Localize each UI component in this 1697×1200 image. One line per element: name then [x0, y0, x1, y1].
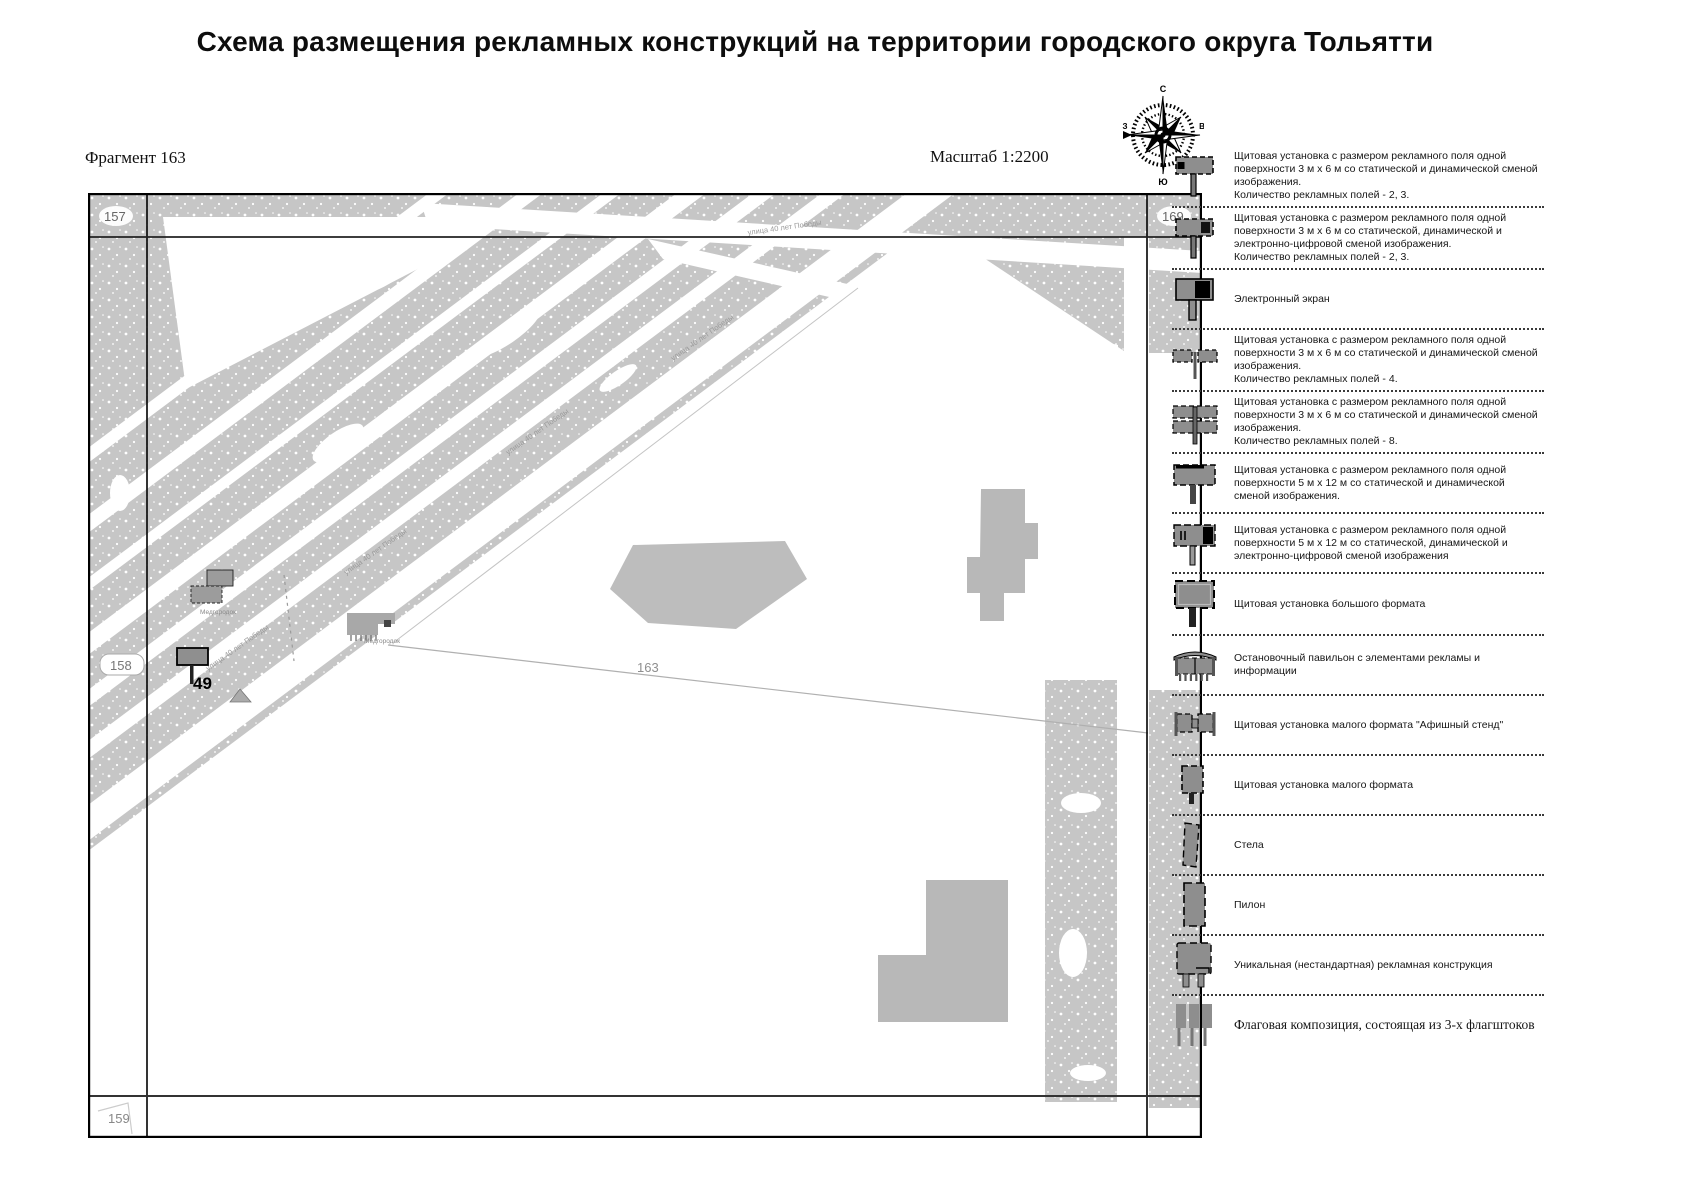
legend-item: Щитовая установка большого формата: [1172, 574, 1544, 636]
legend-item-text: Электронный экран: [1234, 293, 1542, 306]
electronic-screen-icon: [1172, 275, 1222, 323]
legend-item: Стела: [1172, 816, 1544, 876]
legend-item: Пилон: [1172, 876, 1544, 936]
construction-number-label: 49: [193, 674, 212, 693]
poster-stand-icon: [1172, 707, 1222, 743]
legend-item: Щитовая установка с размером рекламного …: [1172, 454, 1544, 514]
legend-item: Щитовая установка малого формата "Афишны…: [1172, 696, 1544, 756]
legend-item-text: Остановочный павильон с элементами рекла…: [1234, 652, 1542, 678]
legend-item-text: Щитовая установка малого формата "Афишны…: [1234, 719, 1542, 732]
legend-item-text: Пилон: [1234, 899, 1542, 912]
small-format-billboard-icon: [1172, 762, 1222, 808]
legend-item-text: Уникальная (нестандартная) рекламная кон…: [1234, 959, 1542, 972]
stela-icon: [1172, 820, 1222, 870]
legend-item-text: Щитовая установка с размером рекламного …: [1234, 396, 1542, 448]
building-label: Медгородок: [364, 638, 400, 645]
billboard-4-fields-icon: [1172, 337, 1222, 383]
legend-item: Уникальная (нестандартная) рекламная кон…: [1172, 936, 1544, 996]
compass-north-label: С: [1160, 84, 1167, 94]
building-label: Медгородок: [200, 609, 236, 616]
legend-item-text: Щитовая установка с размером рекламного …: [1234, 464, 1542, 503]
legend-item-text: Щитовая установка большого формата: [1234, 598, 1542, 611]
legend-item-text: Флаговая композиция, состоящая из 3-х фл…: [1234, 1016, 1542, 1034]
billboard-5x12-static-icon: [1172, 459, 1222, 507]
legend-item: Щитовая установка с размером рекламного …: [1172, 330, 1544, 392]
legend: Щитовая установка с размером рекламного …: [1172, 146, 1544, 1054]
unique-construction-icon: [1172, 940, 1222, 990]
legend-item: Остановочный павильон с элементами рекла…: [1172, 636, 1544, 696]
page-title: Схема размещения рекламных конструкций н…: [0, 26, 1630, 58]
legend-item: Щитовая установка с размером рекламного …: [1172, 208, 1544, 270]
billboard-5x12-digital-icon: [1172, 519, 1222, 567]
legend-item: Щитовая установка малого формата: [1172, 756, 1544, 816]
compass-east-label: В: [1199, 122, 1204, 131]
large-format-billboard-icon: [1172, 578, 1222, 630]
billboard-3x6-digital-icon: [1172, 214, 1222, 262]
fragment-label: Фрагмент 163: [85, 148, 186, 168]
bus-stop-pavilion-icon: [1172, 644, 1222, 686]
compass-south-label: Ю: [1158, 177, 1167, 186]
legend-item-text: Щитовая установка с размером рекламного …: [1234, 334, 1542, 386]
map-fragment-163: улица 40 лет Победы улица 40 лет Победы …: [88, 193, 1202, 1138]
grid-label-158: 158: [110, 658, 132, 673]
legend-item-text: Щитовая установка с размером рекламного …: [1234, 212, 1542, 264]
legend-item-text: Щитовая установка малого формата: [1234, 779, 1542, 792]
scale-label: Масштаб 1:2200: [930, 147, 1049, 167]
legend-item: Щитовая установка с размером рекламного …: [1172, 392, 1544, 454]
legend-item: Щитовая установка с размером рекламного …: [1172, 514, 1544, 574]
grid-label-157: 157: [104, 209, 126, 224]
legend-item: Щитовая установка с размером рекламного …: [1172, 146, 1544, 208]
billboard-8-fields-icon: [1172, 398, 1222, 446]
flag-composition-icon: [1172, 1000, 1222, 1050]
legend-item-text: Щитовая установка с размером рекламного …: [1234, 150, 1542, 202]
legend-item: Электронный экран: [1172, 270, 1544, 330]
compass-west-label: З: [1122, 122, 1127, 131]
billboard-3x6-static-icon: [1172, 152, 1222, 200]
grid-label-159: 159: [108, 1111, 130, 1126]
parcel-number-label: 163: [637, 660, 659, 675]
pylon-icon: [1172, 880, 1222, 930]
legend-item-text: Щитовая установка с размером рекламного …: [1234, 524, 1542, 563]
legend-item-text: Стела: [1234, 839, 1542, 852]
legend-item: Флаговая композиция, состоящая из 3-х фл…: [1172, 996, 1544, 1054]
